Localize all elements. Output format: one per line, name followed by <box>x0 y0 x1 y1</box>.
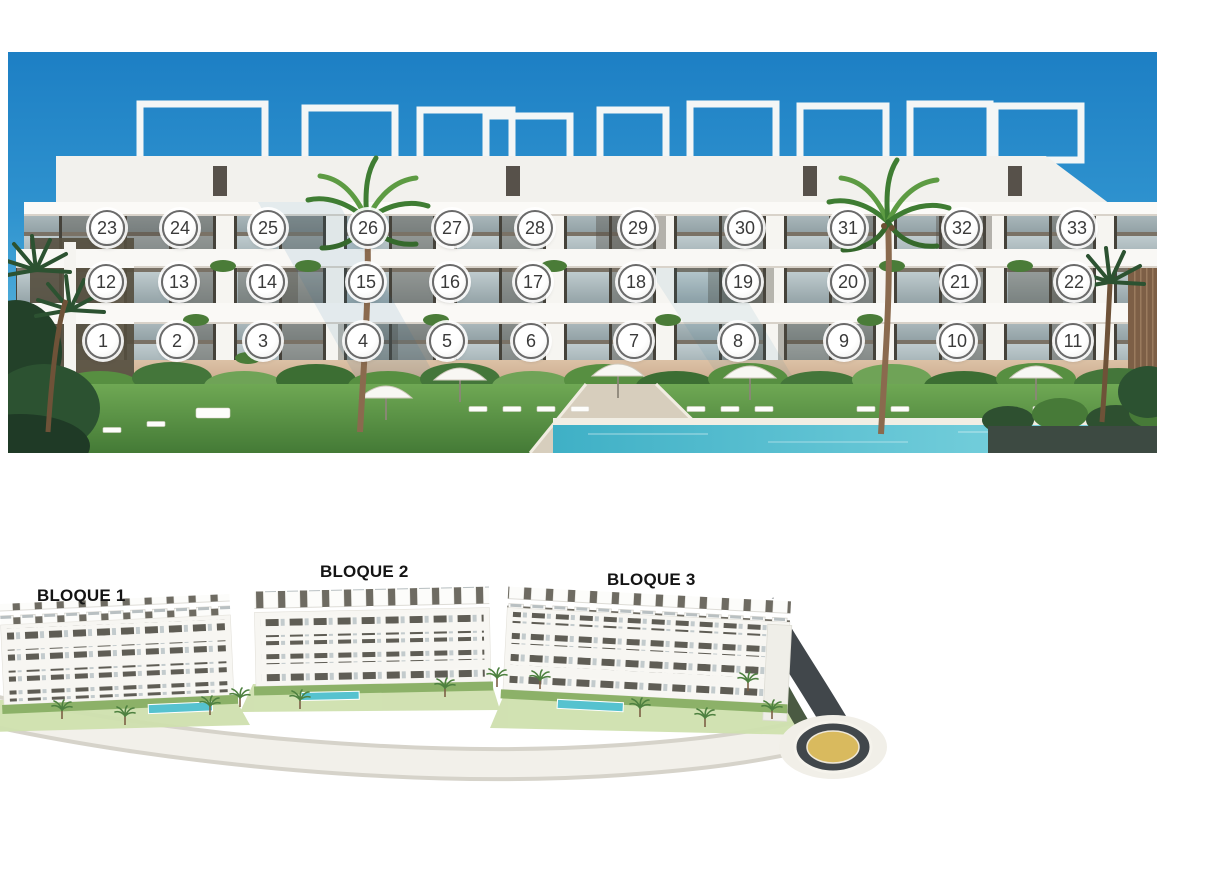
unit-badge-19[interactable]: 19 <box>725 264 761 300</box>
unit-badge-1[interactable]: 1 <box>85 323 121 359</box>
unit-badge-22[interactable]: 22 <box>1056 264 1092 300</box>
unit-badge-20[interactable]: 20 <box>830 264 866 300</box>
unit-badge-11[interactable]: 11 <box>1055 323 1091 359</box>
unit-badge-16[interactable]: 16 <box>432 264 468 300</box>
unit-badge-10[interactable]: 10 <box>939 323 975 359</box>
facade-elevation-image: 1234567891011121314151617181920212223242… <box>8 52 1157 453</box>
unit-badge-5[interactable]: 5 <box>429 323 465 359</box>
unit-badge-7[interactable]: 7 <box>616 323 652 359</box>
unit-badge-32[interactable]: 32 <box>944 210 980 246</box>
siteplan-illustration <box>0 560 905 790</box>
unit-badge-6[interactable]: 6 <box>513 323 549 359</box>
unit-badge-3[interactable]: 3 <box>245 323 281 359</box>
unit-badge-31[interactable]: 31 <box>830 210 866 246</box>
unit-badge-17[interactable]: 17 <box>515 264 551 300</box>
bloque-2-label: BLOQUE 2 <box>320 562 409 582</box>
unit-badge-15[interactable]: 15 <box>348 264 384 300</box>
unit-badge-2[interactable]: 2 <box>159 323 195 359</box>
unit-badge-24[interactable]: 24 <box>162 210 198 246</box>
block-2-building <box>252 584 493 701</box>
bloque-1-label: BLOQUE 1 <box>37 586 126 606</box>
unit-number-overlay: 1234567891011121314151617181920212223242… <box>8 52 1157 453</box>
roundabout <box>779 715 887 779</box>
unit-badge-23[interactable]: 23 <box>89 210 125 246</box>
unit-badge-21[interactable]: 21 <box>942 264 978 300</box>
siteplan-aerial-image: BLOQUE 1 BLOQUE 2 BLOQUE 3 <box>0 560 905 790</box>
unit-badge-25[interactable]: 25 <box>250 210 286 246</box>
unit-badge-30[interactable]: 30 <box>727 210 763 246</box>
unit-badge-12[interactable]: 12 <box>88 264 124 300</box>
unit-badge-27[interactable]: 27 <box>434 210 470 246</box>
unit-badge-18[interactable]: 18 <box>618 264 654 300</box>
unit-badge-33[interactable]: 33 <box>1059 210 1095 246</box>
property-brochure-page: 1234567891011121314151617181920212223242… <box>0 0 1220 870</box>
unit-badge-13[interactable]: 13 <box>161 264 197 300</box>
unit-badge-29[interactable]: 29 <box>620 210 656 246</box>
unit-badge-26[interactable]: 26 <box>350 210 386 246</box>
unit-badge-14[interactable]: 14 <box>249 264 285 300</box>
unit-badge-9[interactable]: 9 <box>826 323 862 359</box>
unit-badge-8[interactable]: 8 <box>720 323 756 359</box>
unit-badge-4[interactable]: 4 <box>345 323 381 359</box>
unit-badge-28[interactable]: 28 <box>517 210 553 246</box>
bloque-3-label: BLOQUE 3 <box>607 570 696 590</box>
